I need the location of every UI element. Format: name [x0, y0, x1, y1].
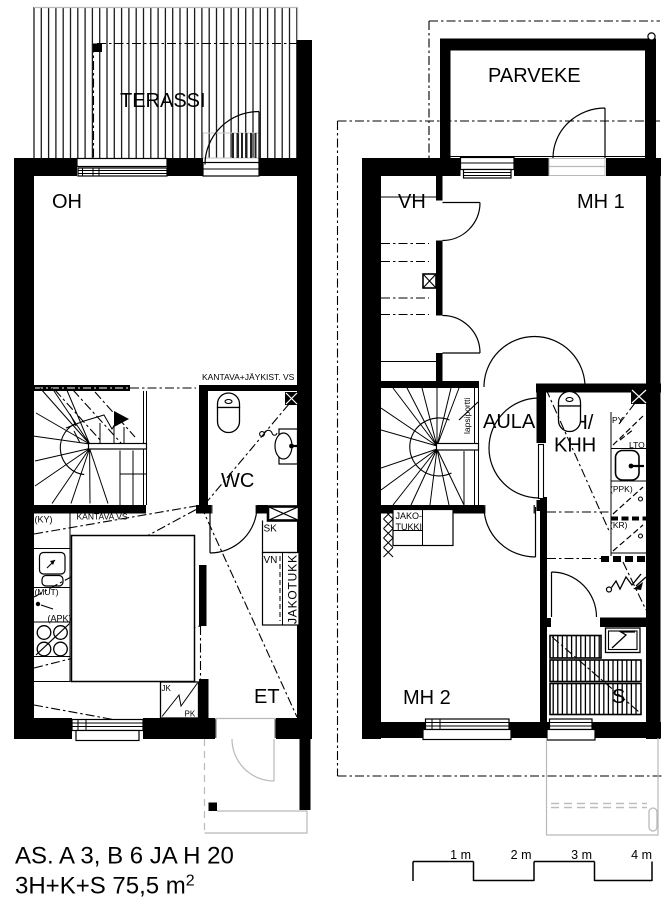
svg-text:MH 1: MH 1 [577, 191, 625, 213]
svg-text:OH: OH [52, 191, 82, 213]
svg-text:VH: VH [398, 191, 426, 213]
svg-text:(PPK): (PPK) [610, 484, 633, 494]
svg-text:3 m: 3 m [571, 848, 592, 862]
svg-text:(APK): (APK) [48, 614, 72, 624]
svg-text:(KY): (KY) [35, 515, 53, 525]
svg-text:TERASSI: TERASSI [120, 90, 206, 112]
svg-text:(MUT): (MUT) [35, 587, 59, 597]
svg-text:(KR): (KR) [610, 520, 628, 530]
svg-text:MH 2: MH 2 [403, 687, 451, 709]
svg-text:KANTAVA VS: KANTAVA VS [77, 512, 128, 522]
svg-text:WC: WC [221, 470, 254, 492]
svg-text:JAKOTUKKI: JAKOTUKKI [286, 550, 300, 624]
svg-text:S: S [612, 686, 625, 708]
svg-text:1 m: 1 m [450, 848, 471, 862]
svg-text:3H+K+S 75,5 m2: 3H+K+S 75,5 m2 [15, 873, 195, 900]
svg-text:PK: PK [185, 710, 196, 719]
svg-text:ET: ET [254, 686, 280, 708]
svg-text:AULA: AULA [483, 411, 536, 433]
svg-text:LTO: LTO [629, 440, 645, 450]
svg-text:4 m: 4 m [631, 848, 652, 862]
svg-text:VN: VN [264, 555, 278, 566]
svg-text:SK: SK [264, 524, 278, 535]
svg-text:2 m: 2 m [511, 848, 532, 862]
svg-text:PARVEKE: PARVEKE [488, 65, 581, 87]
svg-text:TUKKI: TUKKI [396, 522, 423, 532]
svg-text:AS. A 3, B 6 JA H 20: AS. A 3, B 6 JA H 20 [15, 843, 234, 870]
svg-text:JAKO-: JAKO- [396, 511, 423, 521]
svg-text:JK: JK [162, 684, 172, 693]
svg-text:lapsiportti: lapsiportti [462, 398, 472, 434]
svg-text:KANTAVA+JÄYKIST. VS: KANTAVA+JÄYKIST. VS [202, 372, 295, 382]
